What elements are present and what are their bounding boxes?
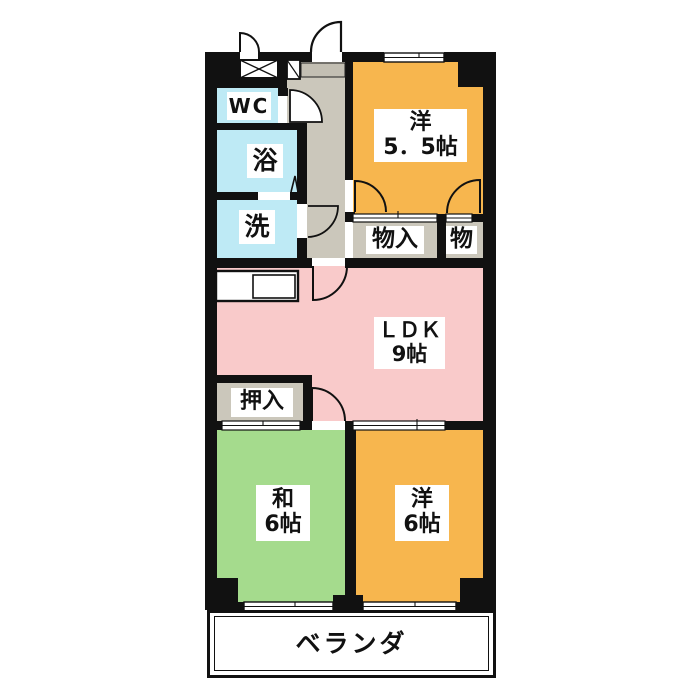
wall-ldk-top-left [205,258,312,268]
wall-storage-right-post [472,214,483,222]
meter-box-icon [240,60,278,78]
balcony: ベランダ [207,610,496,678]
wall-oshiire-right [303,375,312,421]
label-oshiire: 押入 [231,388,293,417]
floor-plan: WC 浴 洗 洋 5．5帖 物入 物 ＬＤＫ 9帖 押入 和 6帖 洋 6帖 ベ… [0,0,700,700]
wall-top-left-block [205,52,240,88]
wall-corner-notch-bottom-left [205,578,238,610]
label-western-5-5-size: 5．5帖 [383,136,458,161]
entry-hall-upper [287,62,345,128]
entrance-door-arc-icon [311,22,341,52]
wall-ldk-bottom-post3 [345,421,353,430]
label-bath: 浴 [247,144,283,178]
label-western-6-name: 洋 [411,488,433,513]
wall-bath-wash-sep-right [290,192,307,200]
wall-meterbox-bottom [240,78,278,88]
label-wash: 洗 [239,210,275,244]
wall-meterbox-right [278,60,287,88]
wall-storage-divider [437,214,446,260]
balcony-inner-rail: ベランダ [214,616,489,671]
label-japanese-6-size: 6帖 [264,513,301,538]
window-top-icon [384,53,444,62]
wall-corner-notch-top-right [458,62,483,87]
wall-wc-right-stub [278,88,288,96]
wall-top-seg3 [444,52,496,62]
label-ldk: ＬＤＫ 9帖 [374,317,445,369]
label-mono: 物 [446,226,477,254]
label-western-5-5-name: 洋 [409,111,431,136]
wall-ldk-top-right [345,258,496,268]
wall-oshiire-top [205,375,312,383]
wall-bath-right [297,130,307,192]
wall-hall-right-upper [345,62,353,180]
wall-bath-wash-sep-left [217,192,258,200]
label-western-6-size: 6帖 [403,513,440,538]
wall-hall-right-lower [345,212,355,222]
label-ldk-name: ＬＤＫ [378,319,441,343]
wall-wc-bath-sep [217,123,307,130]
wall-japanese-western-sep [345,430,356,602]
hallway [307,128,345,258]
service-door-arc-icon [240,33,259,52]
wall-ldk-bottom-seg [445,421,496,430]
label-ldk-size: 9帖 [392,343,428,367]
label-japanese-6: 和 6帖 [256,485,310,541]
label-western-6: 洋 6帖 [395,485,449,541]
wall-outer-left [205,52,217,610]
wall-top-seg2 [342,52,384,62]
wall-ldk-bottom-post1 [217,421,222,430]
sliding-door-mono-icon [446,214,472,222]
label-veranda: ベランダ [295,630,407,658]
label-wc: WC [227,92,271,120]
label-western-5-5: 洋 5．5帖 [374,109,467,162]
label-monoire: 物入 [366,226,424,254]
wall-ldk-bottom-post2 [300,421,312,430]
wall-bottom-middle-pier [333,595,363,610]
wall-wash-right-lower [297,238,307,258]
wall-corner-notch-bottom-right [460,578,496,610]
sliding-door-oshiire-icon [222,421,300,430]
wall-wash-right-stub [297,200,307,204]
label-japanese-6-name: 和 [272,488,294,513]
wall-outer-right [483,52,496,610]
